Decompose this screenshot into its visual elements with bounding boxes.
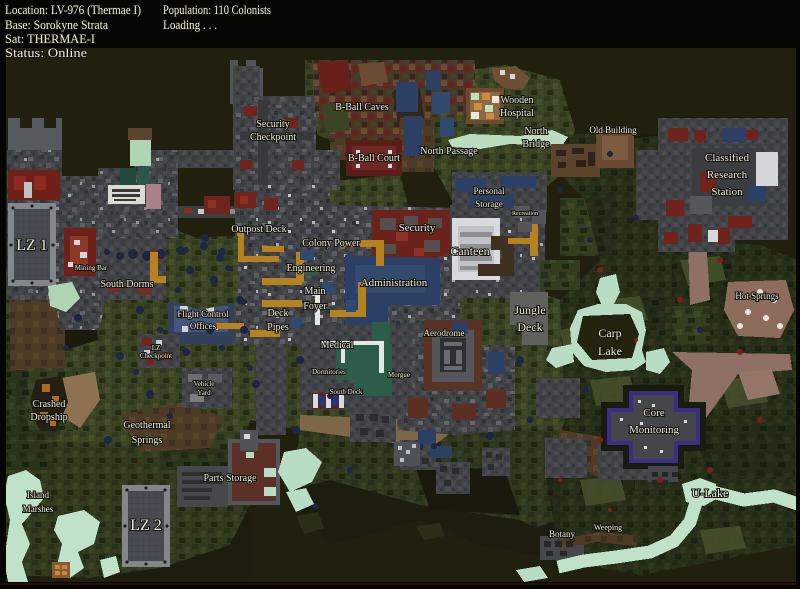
svg-text:Security: Security bbox=[399, 222, 436, 234]
svg-text:Foyer: Foyer bbox=[303, 301, 327, 312]
svg-text:Hot Springs: Hot Springs bbox=[735, 291, 779, 301]
svg-text:Dropship: Dropship bbox=[30, 412, 67, 423]
svg-text:Morgue: Morgue bbox=[388, 371, 410, 379]
svg-text:Administration: Administration bbox=[361, 277, 428, 289]
svg-text:Dormitories: Dormitories bbox=[312, 368, 346, 376]
svg-text:Engineering: Engineering bbox=[287, 263, 336, 274]
svg-text:Springs: Springs bbox=[132, 435, 163, 446]
svg-text:Station: Station bbox=[711, 186, 743, 198]
svg-text:Checkpoint: Checkpoint bbox=[140, 352, 172, 360]
svg-text:Deck: Deck bbox=[517, 320, 542, 334]
svg-text:Population: 110 Colonists: Population: 110 Colonists bbox=[163, 2, 271, 17]
svg-text:Jungle: Jungle bbox=[514, 303, 545, 317]
svg-text:Botany: Botany bbox=[549, 529, 575, 539]
svg-text:U-Lake: U-Lake bbox=[692, 486, 729, 500]
svg-text:Weeping: Weeping bbox=[594, 523, 622, 532]
svg-text:Checkpoint: Checkpoint bbox=[250, 132, 296, 143]
svg-text:North Passage: North Passage bbox=[420, 146, 478, 157]
svg-text:Personal: Personal bbox=[474, 186, 505, 196]
svg-text:Outpost Deck: Outpost Deck bbox=[231, 224, 286, 235]
svg-text:Mining Bar: Mining Bar bbox=[75, 264, 108, 272]
svg-text:Yard: Yard bbox=[197, 389, 211, 397]
svg-text:Carp: Carp bbox=[598, 326, 621, 340]
svg-text:Deck: Deck bbox=[267, 308, 288, 319]
svg-text:Geothermal: Geothermal bbox=[123, 420, 170, 431]
svg-text:Island: Island bbox=[27, 490, 49, 500]
svg-text:Location: LV-976 (Thermae I): Location: LV-976 (Thermae I) bbox=[5, 2, 141, 17]
svg-text:Core: Core bbox=[643, 407, 665, 419]
svg-text:Main: Main bbox=[304, 286, 325, 297]
svg-text:Bridge: Bridge bbox=[522, 139, 550, 150]
svg-text:LZ 1: LZ 1 bbox=[16, 237, 48, 254]
svg-text:Loading . . .: Loading . . . bbox=[163, 17, 217, 32]
svg-text:LZ 2: LZ 2 bbox=[130, 517, 162, 534]
svg-text:Sat: THERMAE-I: Sat: THERMAE-I bbox=[5, 31, 95, 46]
svg-text:Status: Online: Status: Online bbox=[5, 45, 87, 60]
svg-text:Base: Sorokyne Strata: Base: Sorokyne Strata bbox=[5, 17, 108, 32]
svg-text:Colony Power: Colony Power bbox=[302, 238, 360, 249]
svg-text:Flight Control: Flight Control bbox=[177, 309, 229, 319]
svg-text:Marshes: Marshes bbox=[23, 504, 54, 514]
svg-text:Security: Security bbox=[256, 119, 289, 130]
svg-text:North: North bbox=[524, 126, 547, 137]
svg-text:Lake: Lake bbox=[598, 344, 622, 358]
svg-text:Storage: Storage bbox=[475, 199, 503, 209]
svg-text:Pipes: Pipes bbox=[267, 322, 289, 333]
svg-text:Aerodrome: Aerodrome bbox=[424, 328, 465, 338]
svg-text:LZ: LZ bbox=[152, 344, 161, 352]
svg-text:Classified: Classified bbox=[705, 152, 749, 164]
svg-text:Canteen: Canteen bbox=[450, 244, 489, 258]
svg-text:Wooden: Wooden bbox=[500, 95, 533, 106]
svg-text:Crashed: Crashed bbox=[33, 399, 66, 410]
svg-text:Vehicle: Vehicle bbox=[194, 380, 215, 388]
svg-text:Monitoring: Monitoring bbox=[629, 424, 680, 436]
svg-text:Old Building: Old Building bbox=[589, 125, 637, 135]
svg-text:Parts Storage: Parts Storage bbox=[203, 473, 257, 484]
svg-text:Hospital: Hospital bbox=[500, 108, 534, 119]
svg-text:South Dorms: South Dorms bbox=[100, 279, 153, 290]
svg-text:Medical: Medical bbox=[321, 340, 354, 351]
svg-text:Offices: Offices bbox=[190, 321, 217, 331]
svg-text:B-Ball Caves: B-Ball Caves bbox=[335, 102, 389, 113]
svg-text:B-Ball Court: B-Ball Court bbox=[348, 153, 400, 164]
svg-text:South Deck: South Deck bbox=[330, 388, 363, 396]
svg-text:Research: Research bbox=[707, 169, 748, 181]
svg-text:Recreation: Recreation bbox=[512, 211, 538, 217]
